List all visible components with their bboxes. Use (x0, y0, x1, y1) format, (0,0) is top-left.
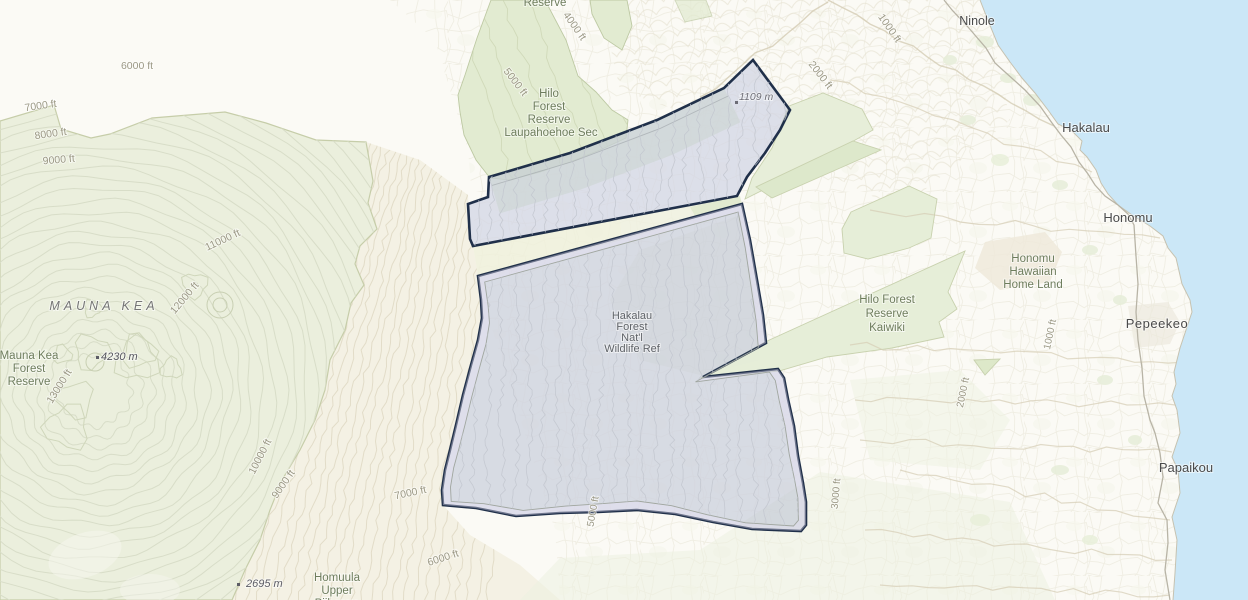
svg-text:Laupahoehoe Sec: Laupahoehoe Sec (504, 127, 598, 139)
svg-text:Mauna Kea: Mauna Kea (0, 350, 59, 362)
svg-text:Reserve: Reserve (528, 114, 571, 126)
svg-text:Home Land: Home Land (1003, 279, 1062, 291)
svg-text:1109 m: 1109 m (739, 91, 773, 103)
svg-text:Forest: Forest (13, 363, 46, 375)
svg-text:Upper: Upper (321, 585, 352, 597)
svg-text:Kaiwiki: Kaiwiki (869, 322, 905, 334)
svg-text:Reserve: Reserve (524, 0, 567, 9)
svg-text:Papaikou: Papaikou (1159, 460, 1213, 475)
svg-text:4230 m: 4230 m (101, 351, 138, 363)
svg-text:Hawaiian: Hawaiian (1009, 266, 1056, 278)
svg-text:Honomu: Honomu (1011, 253, 1054, 265)
svg-text:Reserve: Reserve (866, 308, 909, 320)
svg-text:Hilo: Hilo (539, 88, 559, 100)
svg-text:Homuula: Homuula (314, 572, 361, 584)
svg-text:Ninole: Ninole (959, 14, 994, 28)
svg-text:Pepeekeo: Pepeekeo (1126, 316, 1189, 331)
svg-text:Hilo Forest: Hilo Forest (859, 294, 915, 306)
svg-text:Reserve: Reserve (8, 376, 51, 388)
svg-text:Wildlife Ref: Wildlife Ref (604, 343, 661, 355)
svg-text:Honomu: Honomu (1103, 210, 1152, 225)
svg-text:MAUNA KEA: MAUNA KEA (49, 299, 158, 313)
svg-text:Hakalau: Hakalau (1062, 120, 1110, 135)
svg-text:2695 m: 2695 m (245, 578, 283, 590)
svg-text:6000 ft: 6000 ft (121, 60, 153, 72)
svg-text:Forest: Forest (533, 101, 566, 113)
